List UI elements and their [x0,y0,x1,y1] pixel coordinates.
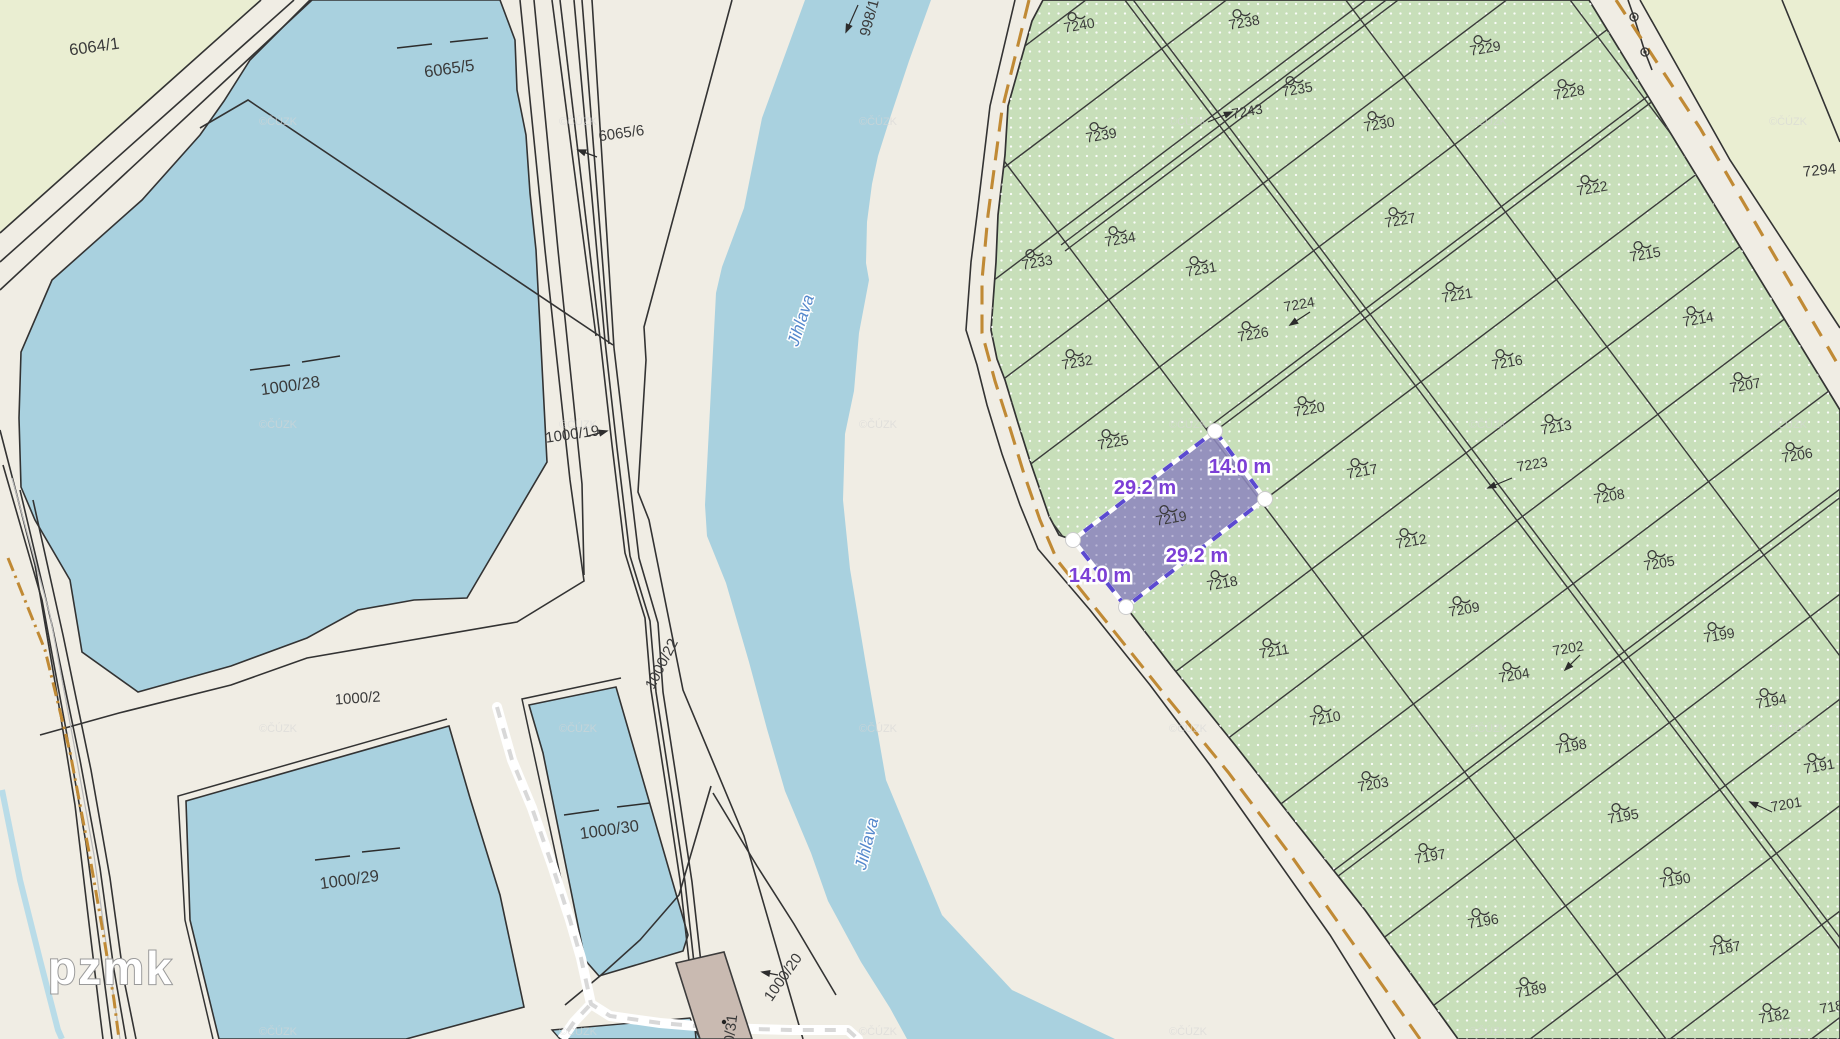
svg-text:©ČÚZK: ©ČÚZK [559,115,598,128]
svg-text:©ČÚZK: ©ČÚZK [559,722,598,735]
svg-text:©ČÚZK: ©ČÚZK [859,418,898,431]
svg-text:©ČÚZK: ©ČÚZK [559,418,598,431]
svg-text:14.0 m: 14.0 m [1069,565,1131,587]
svg-text:©ČÚZK: ©ČÚZK [859,1025,898,1038]
svg-text:©ČÚZK: ©ČÚZK [1769,418,1808,431]
svg-text:©ČÚZK: ©ČÚZK [1169,722,1208,735]
svg-text:©ČÚZK: ©ČÚZK [1169,1025,1208,1038]
svg-text:©ČÚZK: ©ČÚZK [1769,115,1808,128]
svg-text:©ČÚZK: ©ČÚZK [1469,115,1508,128]
svg-text:29.2 m: 29.2 m [1114,477,1176,499]
svg-text:©ČÚZK: ©ČÚZK [1769,722,1808,735]
svg-text:©ČÚZK: ©ČÚZK [1169,418,1208,431]
svg-text:©ČÚZK: ©ČÚZK [1169,115,1208,128]
svg-text:©ČÚZK: ©ČÚZK [559,1025,598,1038]
svg-text:©ČÚZK: ©ČÚZK [1469,418,1508,431]
svg-text:©ČÚZK: ©ČÚZK [859,722,898,735]
svg-text:14.0 m: 14.0 m [1209,456,1271,478]
svg-text:©ČÚZK: ©ČÚZK [859,115,898,128]
svg-text:1000/2: 1000/2 [334,688,381,708]
svg-text:©ČÚZK: ©ČÚZK [259,722,298,735]
svg-text:©ČÚZK: ©ČÚZK [1769,1025,1808,1038]
svg-text:©ČÚZK: ©ČÚZK [259,1025,298,1038]
svg-text:29.2 m: 29.2 m [1166,545,1228,567]
svg-text:©ČÚZK: ©ČÚZK [1469,722,1508,735]
svg-text:©ČÚZK: ©ČÚZK [259,418,298,431]
svg-text:7294: 7294 [1802,160,1837,180]
svg-text:©ČÚZK: ©ČÚZK [259,115,298,128]
svg-text:pzmk: pzmk [48,942,174,994]
svg-text:©ČÚZK: ©ČÚZK [1469,1025,1508,1038]
